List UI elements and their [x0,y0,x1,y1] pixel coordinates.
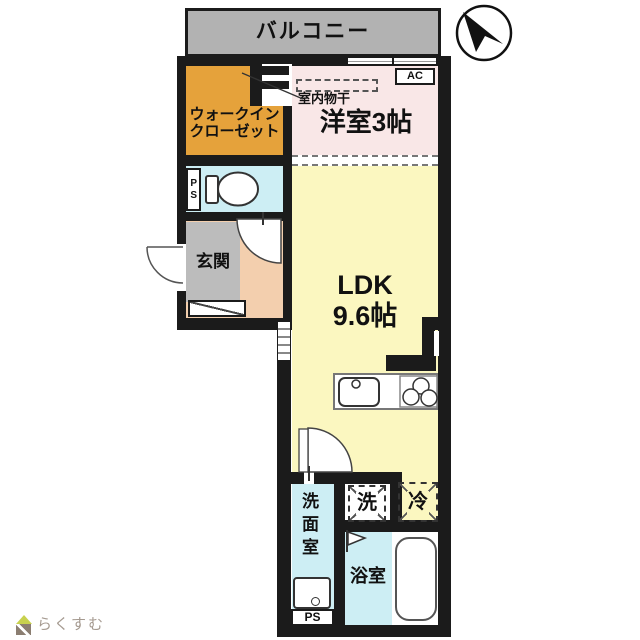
shoe-cabinet-icon [188,300,246,317]
floorplan: バルコニー ウォークイン クローゼット 玄関 洋室3帖 LDK 9.6帖 洗面室… [0,0,640,640]
balcony-window [348,56,436,66]
balcony-label: バルコニー [256,20,371,44]
fridge-space: 冷 [398,482,438,522]
ac-unit: AC [395,68,435,85]
logo: らくすむ [16,609,176,635]
washbasin-icon [293,577,331,609]
room-entrance: 玄関 [186,222,240,302]
wall [334,472,345,625]
drying-rack-icon [296,79,378,92]
pipe-space-top: PS [186,168,201,211]
bathroom-label: 浴室 [345,566,391,587]
washroom-label: 洗面室 [294,492,318,588]
sliding-partition [292,155,438,166]
entrance-label: 玄関 [196,252,230,272]
wall [177,318,291,330]
wall [177,155,292,166]
closet-door-panel [262,66,289,75]
wall [277,625,451,637]
pipe-space-bottom: PS [291,609,334,626]
door-hinge-gap [304,472,314,484]
compass-icon [457,6,511,60]
closet-door-panel [262,81,289,89]
drying-label: 室内物干 [298,92,350,107]
wall [386,355,436,371]
logo-text: らくすむ [37,613,105,635]
entrance-door-gap [175,244,186,291]
wall [438,56,451,637]
wall-gap [434,331,439,356]
side-window [278,322,290,360]
logo-house-icon [16,615,32,635]
ldk-label: LDK 9.6帖 [318,270,412,332]
wall [177,212,292,221]
kitchen-counter [333,373,438,410]
room-balcony: バルコニー [185,8,441,57]
wall [250,64,262,106]
western-room-label: 洋室3帖 [302,108,430,138]
bathtub-icon [395,537,437,621]
washer-space: 洗 [348,485,386,522]
